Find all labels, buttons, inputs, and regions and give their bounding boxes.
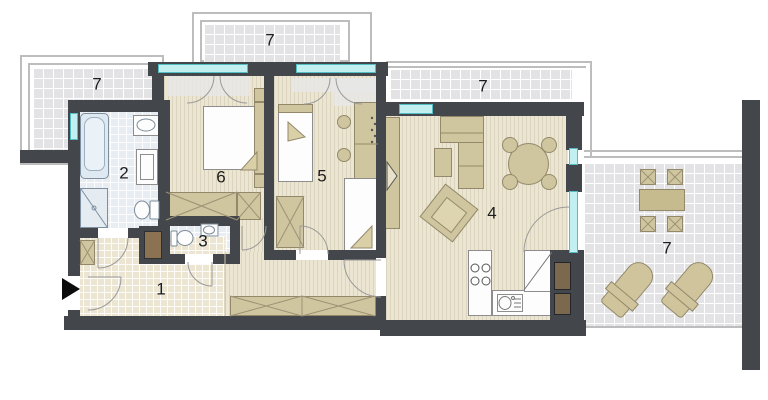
room-label-terrace-nw: 7 [92,76,101,93]
corner-sofa [458,142,484,189]
sun-lounger-bar [665,281,699,312]
desk [354,102,378,184]
kitchen-sink-unit [497,294,523,312]
door-opening [98,228,128,238]
wall [376,62,386,260]
desk-chair [337,148,351,162]
terrace-stool [667,216,683,232]
room-label-balcony-ne: 7 [478,78,487,95]
wall [68,100,162,112]
terrace-stool [667,169,683,185]
window [399,104,433,114]
storage-door [554,293,571,315]
corner-sofa [440,116,484,143]
door-opening [376,258,386,296]
boundary-wall [742,100,760,370]
door-opening [185,254,213,264]
coffee-table [434,148,452,177]
room-label-hall: 1 [156,281,165,298]
room-label-wc: 3 [198,233,207,250]
wall [566,102,582,150]
dining-chair [541,137,557,153]
terrace-e-railing-top-inner [584,156,742,158]
room-label-living: 4 [487,205,496,222]
washbasin [133,115,159,136]
passage-floor [238,218,264,256]
kitchen-counter-stove [468,250,492,316]
window [158,64,248,73]
wall [20,150,68,163]
room-label-terrace-e: 7 [662,240,671,257]
single-bed-headboard [278,104,313,113]
window-recess [168,76,250,96]
wall [158,100,170,232]
shaft-interior [144,231,162,259]
entry-niche [80,240,95,265]
room-label-bedroom-large: 6 [216,169,225,186]
wall [64,316,386,330]
hall-wardrobe [230,296,376,316]
bathtub-inner [84,117,105,171]
room-label-balcony-n: 7 [265,32,274,49]
wall [380,320,586,336]
tv-sideboard [385,117,400,229]
entrance-door-opening [66,276,80,310]
terrace-stool [640,216,656,232]
wardrobe [276,196,304,248]
terrace-table [639,189,685,211]
floor-plan: 1 2 3 4 5 6 7 7 7 7 [0,0,768,400]
dining-chair [502,174,518,190]
door-opening [296,250,328,260]
wall [566,164,582,192]
storage-door [554,262,571,290]
window [569,148,578,165]
single-bed [278,104,313,182]
room-label-bedroom-small: 5 [317,168,326,185]
wall [160,216,240,226]
wall [264,74,274,260]
single-bed [344,178,378,252]
glass-door [569,191,578,253]
washing-machine-door [140,154,154,180]
kitchen-tall-cabinet [524,250,552,292]
dining-chair [541,174,557,190]
terrace-e-edge [584,326,742,328]
room-label-bathroom: 2 [119,165,128,182]
wardrobe [237,192,261,220]
desk-chair [337,115,351,129]
terrace-e-railing-top-outer [584,150,742,152]
balcony-ne-railing-inner [388,66,586,68]
terrace-stool [640,169,656,185]
window [70,113,78,140]
shower [80,188,108,228]
double-bed-mattress [203,106,257,170]
window [296,64,376,73]
dining-chair [502,137,518,153]
sun-lounger-bar [605,281,639,312]
